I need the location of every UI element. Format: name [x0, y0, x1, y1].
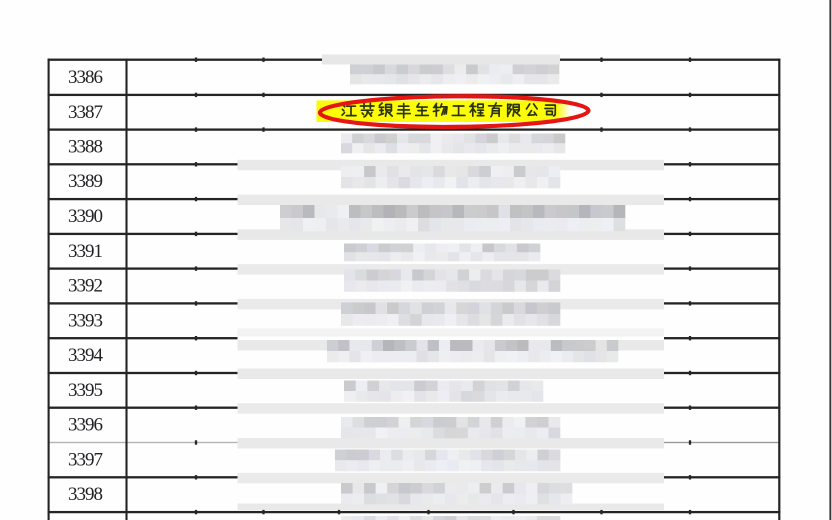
svg-text:3386: 3386 — [68, 67, 103, 88]
svg-text:3395: 3395 — [68, 380, 103, 401]
svg-text:3389: 3389 — [68, 171, 103, 192]
svg-text:3398: 3398 — [68, 484, 103, 505]
svg-text:3396: 3396 — [68, 415, 103, 436]
svg-text:3390: 3390 — [68, 206, 103, 227]
svg-text:3387: 3387 — [68, 102, 103, 123]
svg-text:3394: 3394 — [68, 345, 104, 366]
svg-text:3393: 3393 — [68, 310, 103, 331]
svg-text:3388: 3388 — [68, 136, 103, 157]
svg-text:3397: 3397 — [68, 449, 103, 470]
svg-text:3391: 3391 — [68, 241, 103, 262]
svg-text:3392: 3392 — [68, 276, 103, 297]
